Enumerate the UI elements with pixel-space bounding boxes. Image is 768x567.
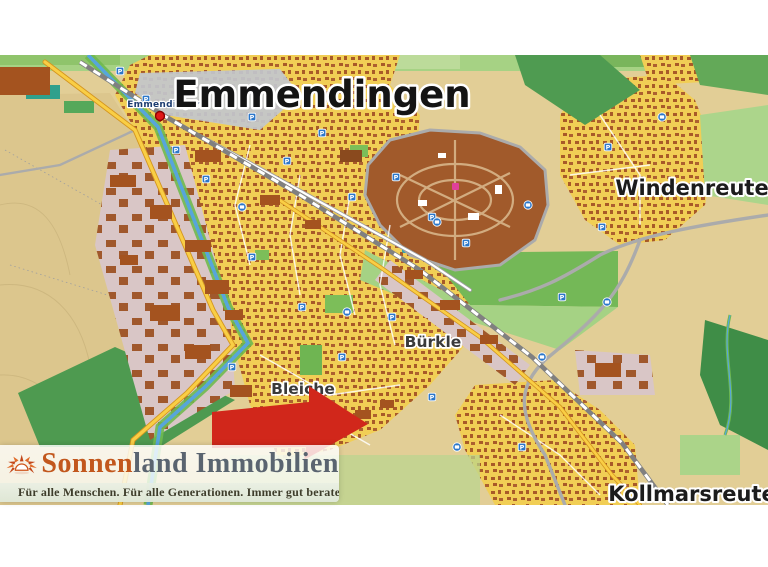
parking-icon: P [604,143,612,151]
label-kollmarsreute: Kollmarsreute [608,482,768,505]
label-windenreute: Windenreute [615,176,768,200]
logo-box: Sonnenland Immobilien Für alle Menschen.… [0,445,339,502]
svg-text:P: P [118,67,123,75]
label-emmendingen: Emmendingen [173,73,470,116]
svg-text:P: P [430,393,435,401]
parking-icon: P [388,313,396,321]
bus-stop-icon [343,308,351,316]
map-canvas: PPPPPPPPPPPPPPPPPPPPPP Emmendingen Emmen… [0,55,768,505]
brand-name: Sonnenland Immobilien [41,450,339,478]
svg-text:P: P [520,443,525,451]
bus-stop-icon [453,443,461,451]
brand-name-accent: Sonnen [41,448,133,479]
station-marker [156,112,165,121]
svg-text:P: P [285,157,290,165]
parking-icon: P [518,443,526,451]
label-bleiche: Bleiche [271,380,335,398]
parking-icon: P [228,363,236,371]
svg-text:P: P [204,175,209,183]
bus-stop-icon [658,113,666,121]
svg-text:P: P [606,143,611,151]
parking-icon: P [598,223,606,231]
bus-stop-icon [538,353,546,361]
bus-stop-icon [603,298,611,306]
svg-text:P: P [600,223,605,231]
svg-text:P: P [320,129,325,137]
bus-stop-icon [238,203,246,211]
svg-text:P: P [340,353,345,361]
parking-icon: P [558,293,566,301]
label-buerkle: Bürkle [405,333,462,351]
bus-stop-icon [524,201,532,209]
brand-name-secondary: land Immobilien [133,448,339,479]
parking-icon: P [392,173,400,181]
svg-text:P: P [300,303,305,311]
parking-icon: P [248,253,256,261]
parking-icon: P [462,239,470,247]
parking-icon: P [428,393,436,401]
parking-icon: P [298,303,306,311]
parking-icon: P [172,146,180,154]
map-image: PPPPPPPPPPPPPPPPPPPPPP Emmendingen Emmen… [0,55,768,505]
parking-icon: P [338,353,346,361]
parking-icon: P [202,175,210,183]
sun-icon [6,445,37,483]
brand-tagline: Für alle Menschen. Für alle Generationen… [0,483,339,502]
svg-text:P: P [250,253,255,261]
parking-icon: P [348,193,356,201]
svg-text:P: P [394,173,399,181]
bus-stop-icon [433,218,441,226]
hospital-marker-icon [452,183,459,190]
svg-text:P: P [230,363,235,371]
svg-text:P: P [350,193,355,201]
svg-text:P: P [390,313,395,321]
parking-icon: P [283,157,291,165]
svg-text:P: P [464,239,469,247]
parking-icon: P [318,129,326,137]
screenshot-stage: PPPPPPPPPPPPPPPPPPPPPP Emmendingen Emmen… [0,0,768,567]
svg-text:P: P [174,146,179,154]
parking-icon: P [116,67,124,75]
svg-text:P: P [560,293,565,301]
